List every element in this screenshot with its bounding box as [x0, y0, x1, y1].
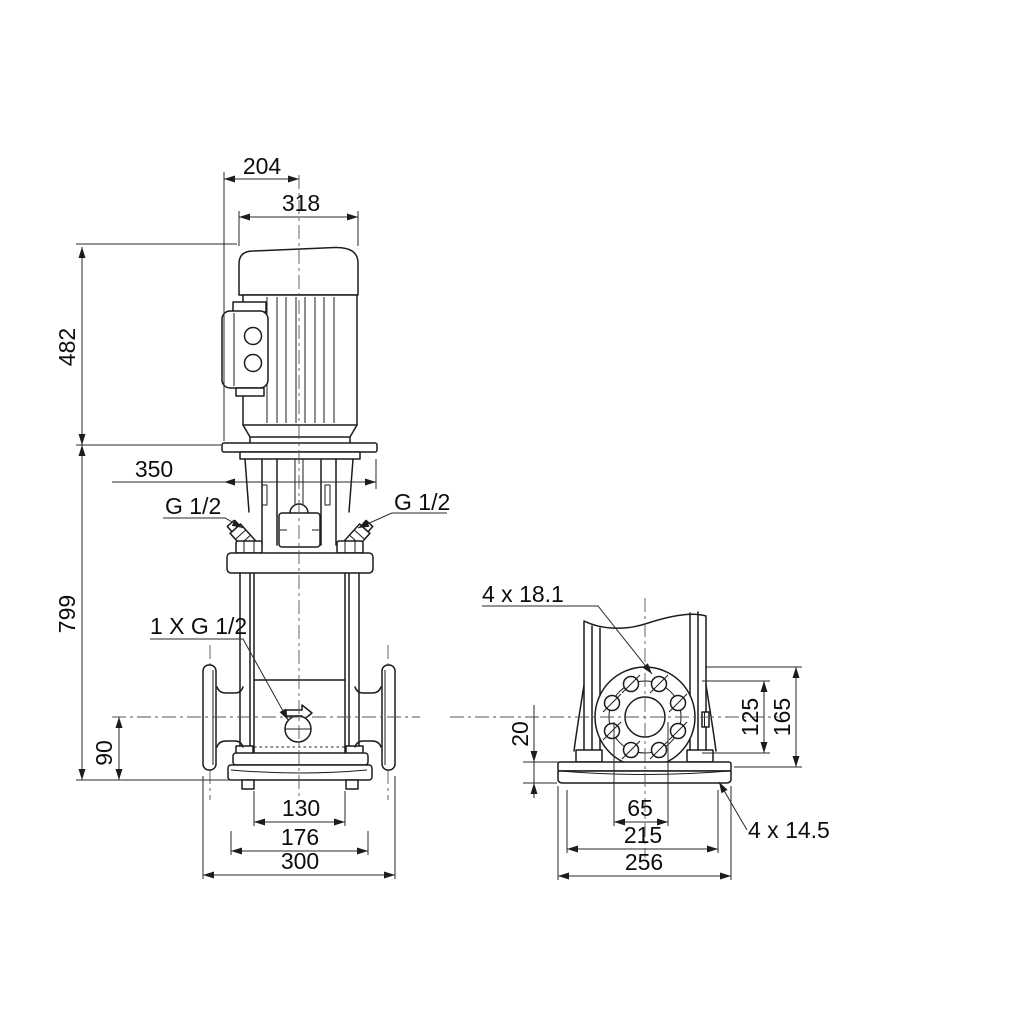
drain-plug-label: 1 X G 1/2 [150, 613, 247, 639]
dim-799-label: 799 [54, 595, 80, 633]
casing-foot [687, 750, 713, 762]
dim-90-label: 90 [91, 740, 117, 766]
base-holes-label: 4 x 14.5 [748, 817, 830, 843]
dim-20-label: 20 [507, 721, 533, 747]
dim-130-label: 130 [282, 795, 320, 821]
pump-head-flange [227, 553, 373, 573]
dim-318-label: 318 [282, 190, 320, 216]
dim-300-label: 300 [281, 848, 319, 874]
side-base [558, 762, 731, 783]
motor-fan-cover [239, 247, 358, 295]
dim-204-label: 204 [243, 153, 282, 179]
flange-holes-label: 4 x 18.1 [482, 581, 564, 607]
dim-165-label: 165 [769, 698, 795, 736]
cable-entry-hole [245, 328, 262, 345]
plug-right-label: G 1/2 [394, 489, 450, 515]
paper-background [0, 0, 1024, 1024]
dim-350-label: 350 [135, 456, 173, 482]
dim-482-label: 482 [54, 328, 80, 366]
plug-left-label: G 1/2 [165, 493, 221, 519]
base-foot [242, 780, 254, 789]
cable-entry-hole [245, 355, 262, 372]
dim-256-label: 256 [625, 849, 663, 875]
pump-dimensional-drawing: 204 318 482 799 350 [0, 0, 1024, 1024]
dim-176-label: 176 [281, 824, 319, 850]
drawing-canvas: 204 318 482 799 350 [0, 0, 1024, 1024]
drain-plug [285, 705, 312, 742]
dim-215-label: 215 [624, 822, 662, 848]
base-foot [346, 780, 358, 789]
dim-65-label: 65 [627, 795, 653, 821]
casing-foot [576, 750, 602, 762]
flange-side-tab [702, 712, 709, 727]
dim-125-label: 125 [737, 698, 763, 736]
terminal-box [222, 302, 268, 396]
